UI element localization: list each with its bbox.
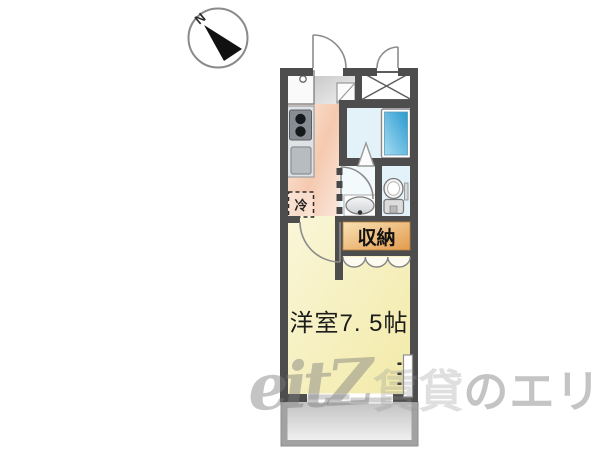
kitchen-basin — [291, 147, 311, 174]
refrigerator-label: 冷 — [294, 198, 307, 213]
window-pane — [308, 394, 350, 400]
wall-panel-box — [404, 355, 413, 397]
balcony-floor — [288, 402, 412, 440]
washbasin — [344, 195, 377, 216]
stove-burner-icon — [295, 126, 305, 136]
wall-room-top-left — [288, 216, 300, 223]
storage-closet: 収納 — [343, 222, 410, 267]
window-sliding — [307, 394, 393, 404]
compass: N — [189, 9, 248, 68]
toilet-bowl-inner — [388, 182, 400, 196]
wall-right — [410, 68, 418, 402]
wall-storage-left — [335, 216, 343, 280]
refrigerator-space: 冷 — [289, 192, 314, 217]
storage-folding-door-icon — [343, 257, 410, 267]
laundry-door-arc — [377, 47, 398, 68]
toilet-tank-detail — [390, 206, 397, 213]
panel-tick — [398, 383, 402, 386]
washbasin-faucet-icon — [358, 210, 363, 215]
main-room-label: 洋室7. 5帖 — [289, 310, 408, 337]
panel-tick — [398, 373, 402, 376]
floorplan-image: 冷 — [0, 0, 600, 450]
floorplan-drawing: 冷 — [0, 0, 600, 450]
wall-bath-top — [339, 100, 418, 108]
window-pane — [350, 397, 392, 403]
wall-toilet-divider — [375, 166, 382, 216]
toilet-paper-holder — [405, 183, 409, 200]
wall-bottom-left — [280, 394, 307, 402]
wall-bath-left — [339, 100, 347, 166]
bathtub-water — [385, 112, 408, 155]
storage-label: 収納 — [357, 226, 395, 249]
laundry-space — [361, 72, 412, 100]
bathtub — [382, 109, 411, 158]
entrance-door-arc — [313, 35, 346, 68]
wall-storage-bottom — [343, 250, 410, 256]
kitchen-unit — [287, 71, 314, 177]
balcony — [281, 402, 418, 446]
wall-entry-right — [355, 68, 362, 104]
wall-bath-bottom — [339, 158, 410, 166]
faucet-icon — [300, 76, 306, 82]
wall-left — [280, 68, 288, 402]
panel-tick — [398, 363, 402, 366]
stove-burner-icon — [295, 114, 305, 124]
